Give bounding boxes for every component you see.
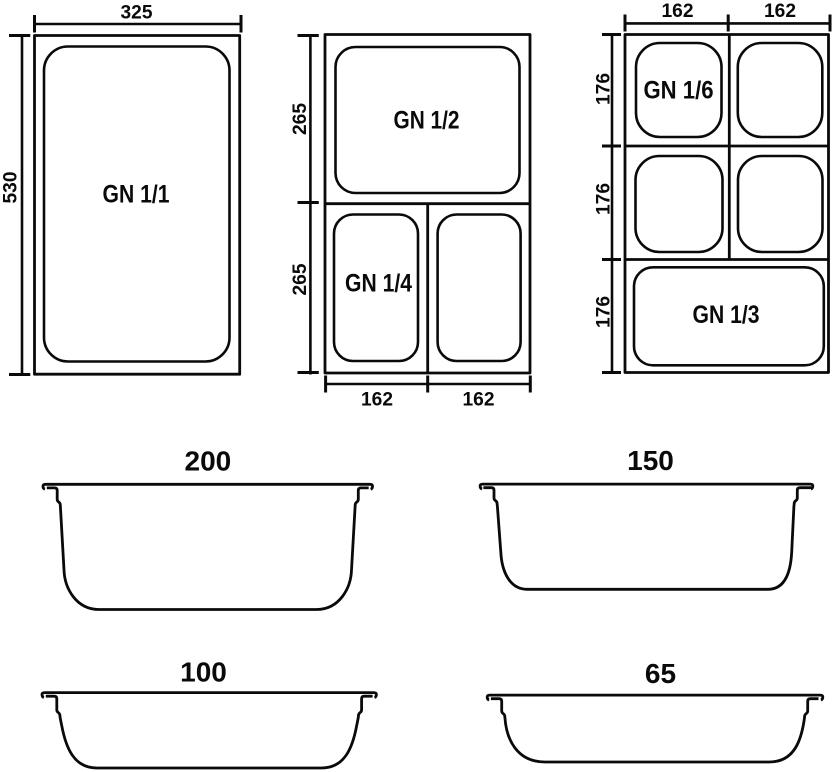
svg-text:GN 1/2: GN 1/2 (394, 107, 460, 135)
svg-text:200: 200 (185, 446, 232, 477)
svg-text:162: 162 (463, 390, 495, 411)
svg-text:162: 162 (361, 390, 393, 411)
svg-text:162: 162 (764, 1, 796, 22)
svg-text:325: 325 (121, 3, 153, 24)
svg-text:GN 1/3: GN 1/3 (693, 301, 760, 329)
svg-text:GN 1/1: GN 1/1 (103, 181, 170, 209)
svg-text:100: 100 (180, 657, 227, 688)
svg-text:150: 150 (627, 445, 674, 476)
svg-text:176: 176 (594, 183, 615, 215)
svg-text:176: 176 (594, 296, 615, 328)
svg-text:176: 176 (594, 73, 615, 105)
svg-text:530: 530 (1, 172, 22, 204)
svg-text:162: 162 (662, 1, 694, 22)
svg-text:265: 265 (290, 263, 311, 295)
svg-text:GN 1/6: GN 1/6 (644, 77, 714, 105)
svg-text:265: 265 (290, 103, 311, 135)
svg-text:65: 65 (645, 658, 676, 689)
svg-text:GN 1/4: GN 1/4 (345, 270, 412, 298)
